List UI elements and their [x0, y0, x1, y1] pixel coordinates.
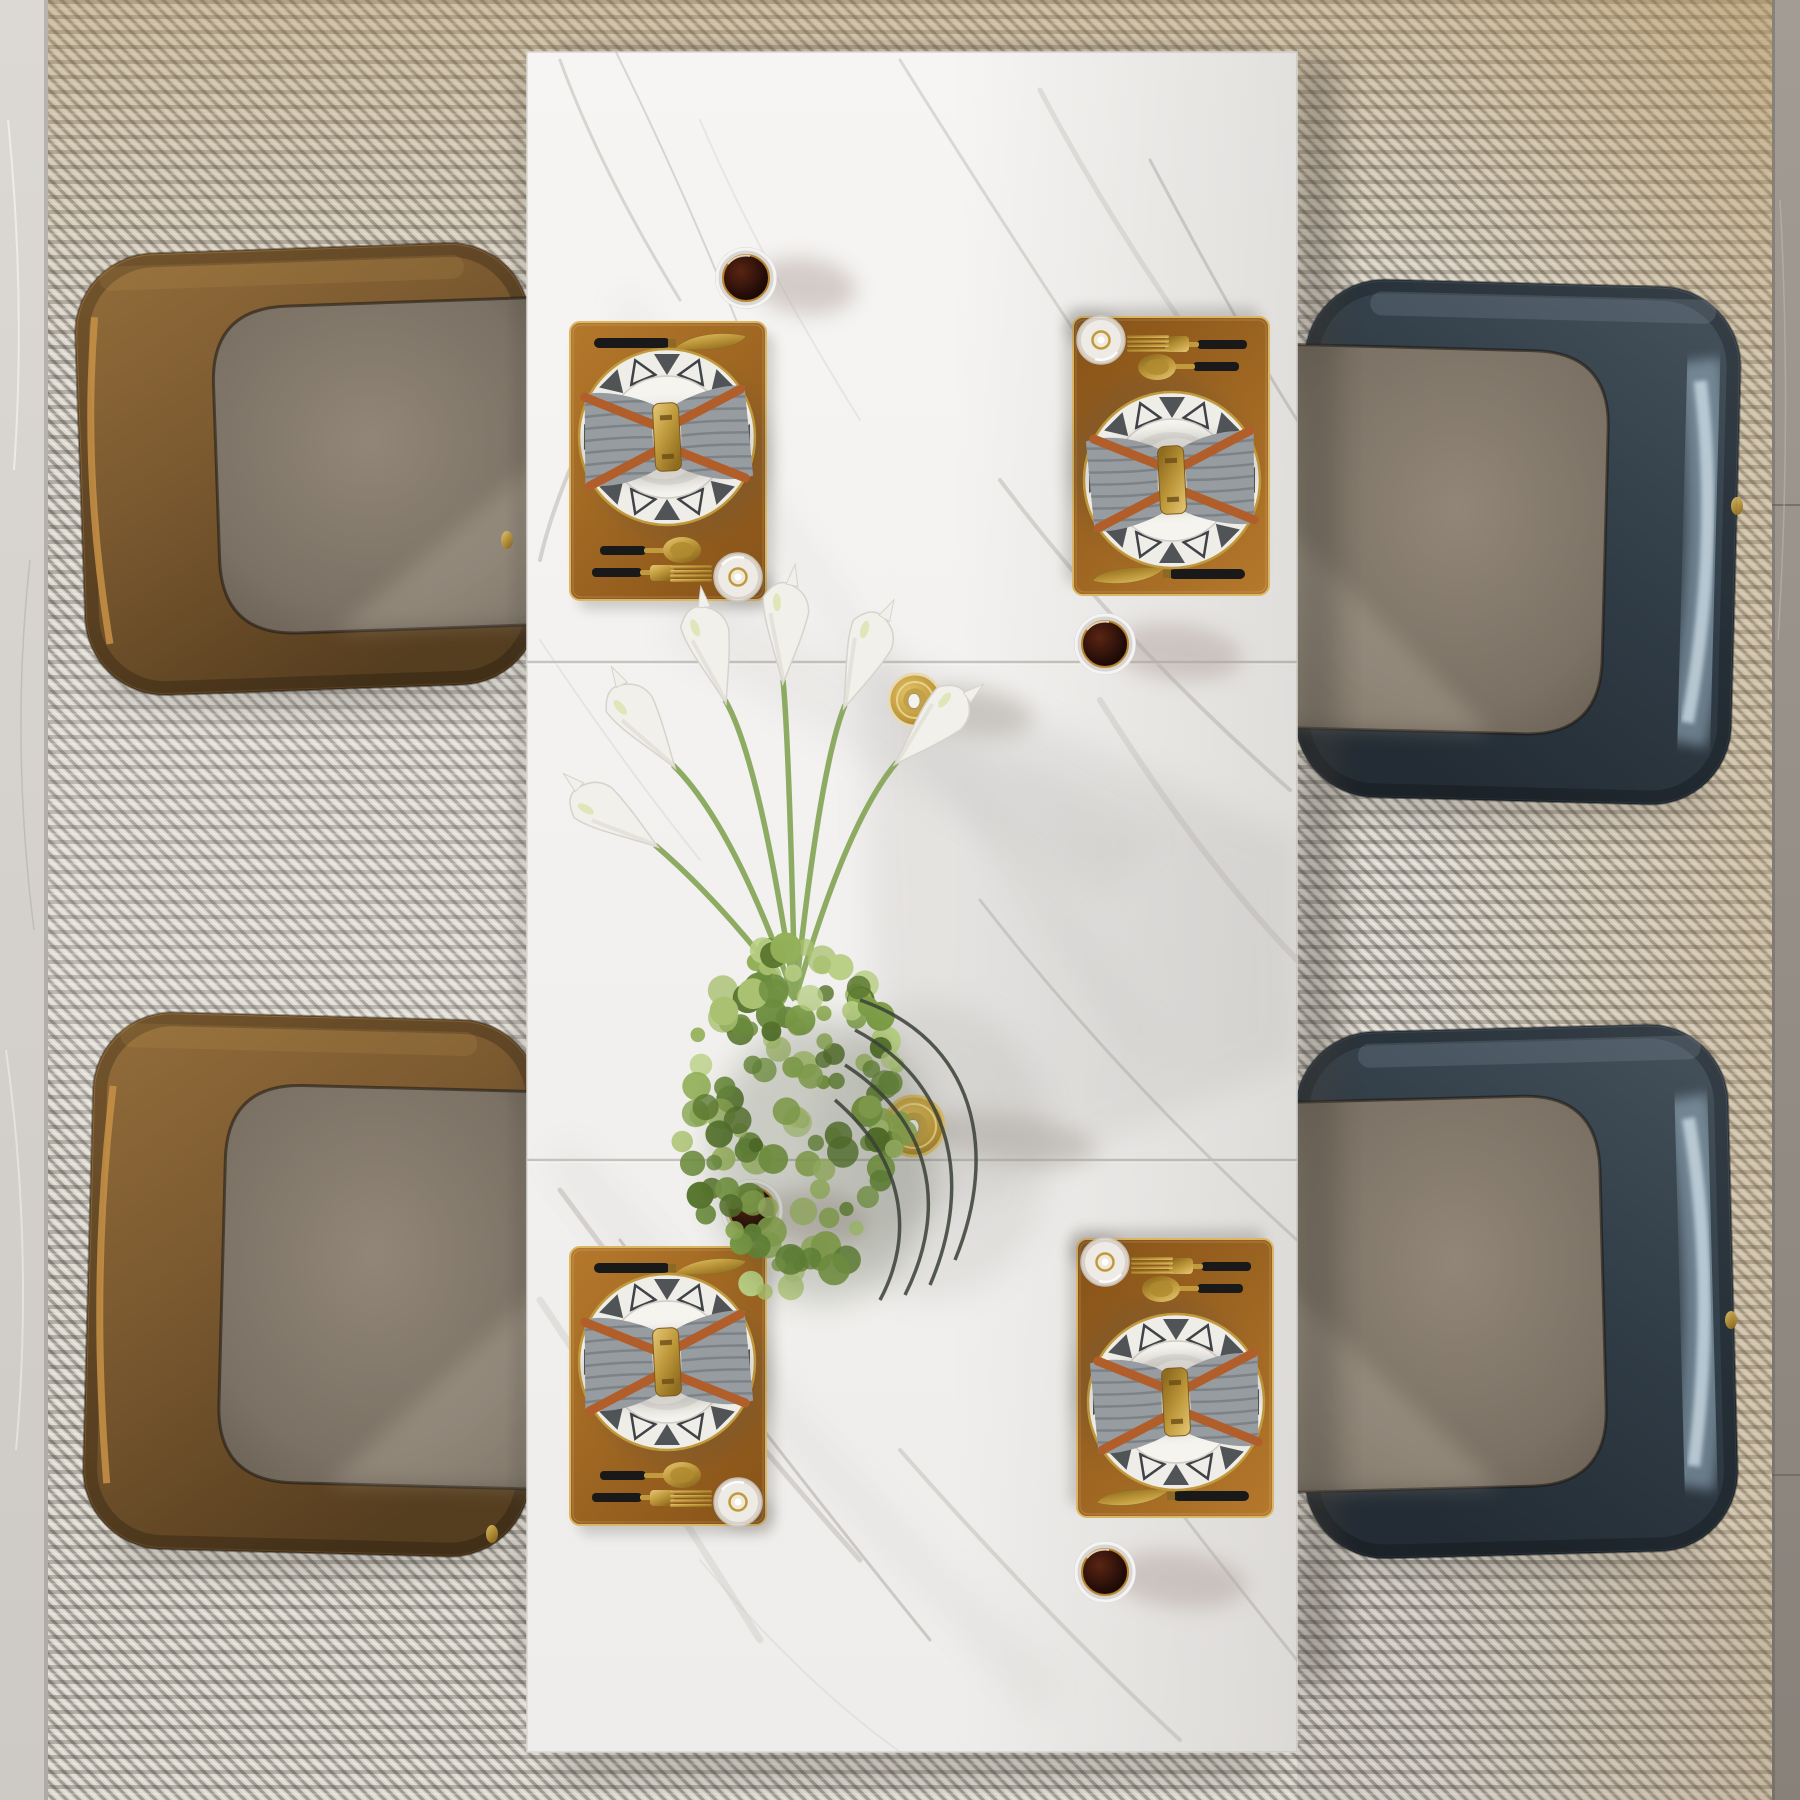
place-setting-bottom-right: [1069, 1229, 1273, 1517]
place-setting-top-left: [570, 322, 774, 610]
dining-set-top-view: [0, 0, 1800, 1800]
chair-foot: [1731, 497, 1743, 515]
place-setting-top-right: [1065, 307, 1269, 595]
chair-bottom-right: [1269, 1022, 1740, 1561]
chair-top-left: [72, 239, 566, 697]
chair-bottom-left: [81, 1010, 566, 1559]
chair-top-right: [1269, 277, 1742, 807]
floor-left: [0, 0, 48, 1800]
chair-foot: [1725, 1311, 1737, 1329]
floor-right: [1772, 0, 1800, 1800]
chair-foot: [501, 531, 513, 549]
chair-foot: [486, 1525, 498, 1543]
